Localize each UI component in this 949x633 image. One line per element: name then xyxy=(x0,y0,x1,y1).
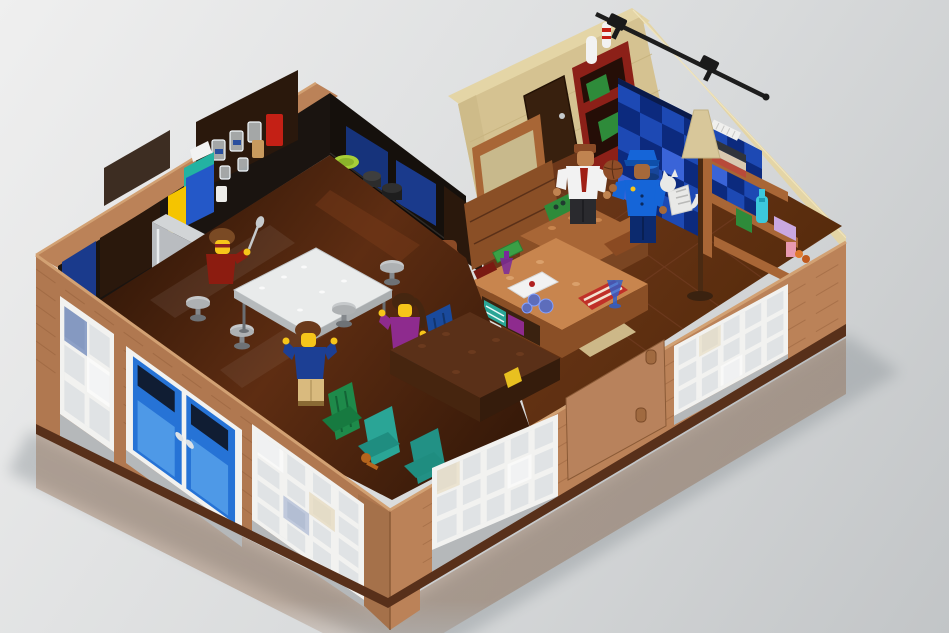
peg xyxy=(636,408,646,422)
head xyxy=(398,304,412,317)
glass-label xyxy=(215,149,223,154)
orange-piece xyxy=(802,255,810,263)
blue-cap xyxy=(627,150,657,160)
tan-jar xyxy=(252,140,264,158)
red-canister xyxy=(266,114,283,146)
hand xyxy=(331,338,338,345)
badge xyxy=(631,187,636,192)
door-handle xyxy=(559,113,565,119)
hand xyxy=(379,310,386,317)
glass-label xyxy=(233,140,241,145)
headband xyxy=(215,244,230,248)
peg xyxy=(646,350,656,364)
hand xyxy=(244,249,251,256)
head xyxy=(577,151,594,166)
torso xyxy=(206,254,236,284)
head xyxy=(301,333,316,347)
pink-jar xyxy=(786,242,796,257)
red-seal xyxy=(529,281,535,287)
head xyxy=(634,164,650,179)
hand xyxy=(283,338,290,345)
torso-navy xyxy=(294,347,326,379)
hand xyxy=(609,184,617,192)
white-jar xyxy=(216,186,227,202)
orange-piece xyxy=(795,250,803,258)
uniform-jacket xyxy=(624,180,660,216)
lamp-base xyxy=(687,291,713,301)
hand xyxy=(659,206,667,214)
hand xyxy=(553,188,561,196)
hand xyxy=(603,191,611,199)
lego-render-image xyxy=(0,0,949,633)
lamp-pole xyxy=(698,156,703,294)
basketball xyxy=(603,160,623,180)
